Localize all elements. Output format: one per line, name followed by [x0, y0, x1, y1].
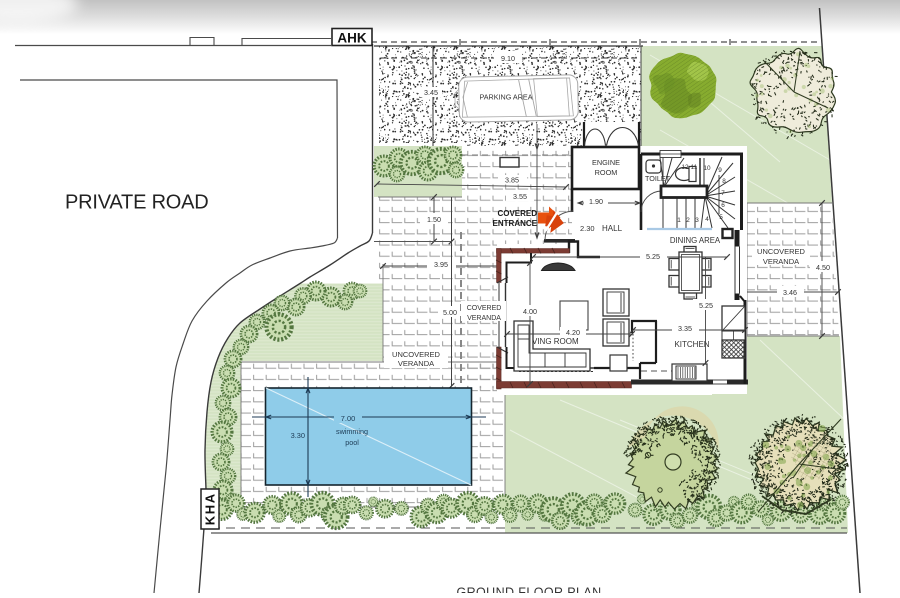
svg-text:1.90: 1.90	[589, 197, 603, 206]
svg-text:VERANDA: VERANDA	[467, 315, 501, 322]
svg-text:VERANDA: VERANDA	[763, 257, 799, 266]
svg-text:3.46: 3.46	[783, 288, 797, 297]
svg-text:K: K	[203, 515, 218, 525]
svg-text:AHK: AHK	[337, 31, 366, 46]
svg-text:UNCOVERED: UNCOVERED	[757, 247, 806, 256]
svg-text:6: 6	[721, 202, 725, 209]
svg-text:10: 10	[703, 165, 711, 172]
svg-text:7.00: 7.00	[341, 414, 355, 423]
svg-text:9: 9	[718, 167, 722, 174]
svg-text:4.20: 4.20	[566, 328, 580, 337]
svg-text:2.30: 2.30	[580, 224, 595, 233]
svg-text:KITCHEN: KITCHEN	[674, 340, 709, 349]
svg-text:1.50: 1.50	[427, 215, 441, 224]
svg-text:DINING AREA: DINING AREA	[670, 236, 721, 245]
svg-text:3.95: 3.95	[434, 260, 448, 269]
svg-text:VERANDA: VERANDA	[398, 359, 434, 368]
svg-text:2: 2	[686, 217, 690, 224]
svg-text:3.55: 3.55	[513, 192, 527, 201]
svg-text:COVERED: COVERED	[497, 209, 537, 218]
svg-text:7: 7	[721, 190, 725, 197]
svg-text:4: 4	[705, 216, 709, 223]
svg-text:3.85: 3.85	[505, 176, 519, 185]
svg-text:3: 3	[695, 217, 699, 224]
svg-text:swimming: swimming	[336, 427, 368, 436]
svg-text:1: 1	[677, 217, 681, 224]
svg-text:GROUND FLOOR PLAN: GROUND FLOOR PLAN	[456, 586, 601, 594]
svg-text:pool: pool	[345, 438, 359, 447]
svg-text:ROOM: ROOM	[595, 168, 618, 177]
svg-text:5: 5	[719, 214, 723, 221]
svg-text:11: 11	[691, 164, 698, 171]
svg-text:HALL: HALL	[602, 224, 623, 233]
svg-text:ENTRANCE: ENTRANCE	[493, 219, 538, 228]
svg-text:PARKING AREA: PARKING AREA	[480, 93, 533, 102]
svg-text:COVERED: COVERED	[467, 305, 502, 312]
svg-text:PRIVATE ROAD: PRIVATE ROAD	[65, 192, 209, 214]
svg-text:UNCOVERED: UNCOVERED	[392, 350, 441, 359]
svg-text:12: 12	[681, 164, 689, 171]
svg-text:3.30: 3.30	[291, 431, 305, 440]
svg-text:5.25: 5.25	[699, 301, 713, 310]
svg-text:A: A	[203, 493, 218, 503]
svg-text:8: 8	[722, 178, 726, 185]
svg-text:9.10: 9.10	[501, 54, 515, 63]
svg-text:H: H	[203, 505, 218, 514]
svg-text:3.35: 3.35	[678, 324, 692, 333]
svg-text:5.25: 5.25	[646, 252, 660, 261]
svg-text:5.00: 5.00	[443, 308, 457, 317]
svg-text:4.00: 4.00	[523, 307, 537, 316]
svg-text:4.50: 4.50	[816, 263, 830, 272]
svg-text:ENGINE: ENGINE	[592, 158, 620, 167]
svg-text:3.45: 3.45	[424, 88, 438, 97]
